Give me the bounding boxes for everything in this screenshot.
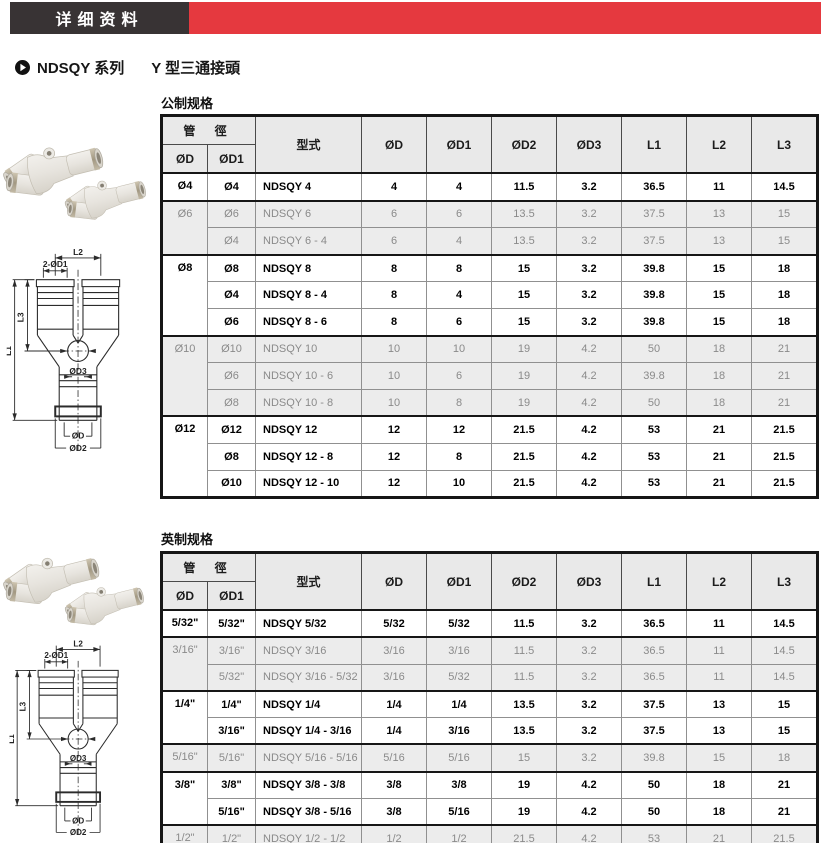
column-header: ØD1 — [427, 116, 492, 174]
value-cell: 39.8 — [622, 282, 687, 309]
value-cell: Ø12 — [208, 416, 256, 443]
value-cell: 3.2 — [557, 718, 622, 745]
column-header: L2 — [687, 116, 752, 174]
value-cell: 3/16" — [208, 718, 256, 745]
pipe-od-cell: 3/16" — [162, 637, 208, 691]
value-cell: 21 — [752, 799, 818, 826]
value-cell: 3.2 — [557, 664, 622, 691]
table-row: 1/4"1/4"NDSQY 1/41/41/413.53.237.51315 — [162, 691, 818, 718]
table-row: 5/32"NDSQY 3/16 - 5/323/165/3211.53.236.… — [162, 664, 818, 691]
value-cell: 15 — [687, 744, 752, 771]
value-cell: 18 — [687, 363, 752, 390]
pipe-diameter-header: 管 徑 — [162, 553, 256, 582]
value-cell: 21 — [752, 336, 818, 363]
series-title: NDSQY 系列 Y 型三通接頭 — [15, 57, 240, 78]
value-cell: 37.5 — [622, 201, 687, 228]
table-row: Ø12Ø12NDSQY 12121221.54.2532121.5 — [162, 416, 818, 443]
value-cell: 4 — [427, 228, 492, 255]
value-cell: 36.5 — [622, 664, 687, 691]
value-cell: 21 — [687, 470, 752, 498]
value-cell: 1/2" — [208, 825, 256, 843]
model-cell: NDSQY 6 — [256, 201, 362, 228]
value-cell: 5/16 — [362, 744, 427, 771]
value-cell: 5/16 — [427, 799, 492, 826]
model-cell: NDSQY 6 - 4 — [256, 228, 362, 255]
value-cell: 11 — [687, 610, 752, 637]
value-cell: Ø10 — [208, 470, 256, 498]
value-cell: 50 — [622, 336, 687, 363]
value-cell: 19 — [492, 363, 557, 390]
table-row: Ø4NDSQY 6 - 46413.53.237.51315 — [162, 228, 818, 255]
value-cell: 3/16 — [427, 718, 492, 745]
imperial-spec-label: 英制规格 — [161, 529, 213, 548]
metric-spec-table-container: 管 徑型式ØDØD1ØD2ØD3L1L2L3ØDØD1Ø4Ø4NDSQY 444… — [160, 114, 818, 499]
value-cell: 3/8 — [362, 799, 427, 826]
value-cell: 4 — [362, 173, 427, 201]
value-cell: 3.2 — [557, 691, 622, 718]
value-cell: 13 — [687, 201, 752, 228]
header-accent-bar — [189, 2, 821, 34]
value-cell: 3.2 — [557, 173, 622, 201]
value-cell: 3.2 — [557, 201, 622, 228]
value-cell: 6 — [362, 201, 427, 228]
column-header: L1 — [622, 116, 687, 174]
value-cell: 18 — [752, 744, 818, 771]
value-cell: 4.2 — [557, 416, 622, 443]
column-header: L2 — [687, 553, 752, 611]
value-cell: 6 — [427, 308, 492, 335]
value-cell: 37.5 — [622, 691, 687, 718]
model-cell: NDSQY 12 — [256, 416, 362, 443]
value-cell: 15 — [492, 282, 557, 309]
page-header-bar: 详细资料 — [10, 2, 821, 34]
pipe-od-cell: Ø8 — [162, 255, 208, 336]
value-cell: 6 — [362, 228, 427, 255]
value-cell: 4.2 — [557, 825, 622, 843]
value-cell: 53 — [622, 443, 687, 470]
value-cell: Ø6 — [208, 201, 256, 228]
value-cell: 3.2 — [557, 610, 622, 637]
value-cell: 10 — [427, 470, 492, 498]
value-cell: 5/32" — [208, 610, 256, 637]
value-cell: 53 — [622, 470, 687, 498]
value-cell: 36.5 — [622, 637, 687, 664]
model-cell: NDSQY 3/16 - 5/32 — [256, 664, 362, 691]
value-cell: 10 — [362, 363, 427, 390]
value-cell: 12 — [362, 443, 427, 470]
value-cell: 50 — [622, 389, 687, 416]
value-cell: 5/32 — [427, 664, 492, 691]
pipe-od-cell: Ø6 — [162, 201, 208, 255]
value-cell: 36.5 — [622, 610, 687, 637]
table-row: Ø4NDSQY 8 - 484153.239.81518 — [162, 282, 818, 309]
value-cell: 36.5 — [622, 173, 687, 201]
value-cell: 4 — [427, 173, 492, 201]
value-cell: 21.5 — [492, 825, 557, 843]
model-cell: NDSQY 1/4 - 3/16 — [256, 718, 362, 745]
value-cell: 18 — [752, 282, 818, 309]
value-cell: 8 — [362, 282, 427, 309]
value-cell: 4.2 — [557, 470, 622, 498]
value-cell: 3.2 — [557, 308, 622, 335]
value-cell: 21.5 — [752, 416, 818, 443]
dimension-drawing-imperial — [6, 638, 156, 843]
header-row: 管 徑型式ØDØD1ØD2ØD3L1L2L3 — [162, 553, 818, 582]
value-cell: Ø8 — [208, 443, 256, 470]
value-cell: 1/2 — [427, 825, 492, 843]
header-tab-label: 详细资料 — [55, 6, 143, 30]
value-cell: 11 — [687, 637, 752, 664]
value-cell: 21 — [752, 389, 818, 416]
imperial-spec-table-container: 管 徑型式ØDØD1ØD2ØD3L1L2L3ØDØD15/32"5/32"NDS… — [160, 551, 818, 843]
value-cell: 11.5 — [492, 173, 557, 201]
column-header: ØD3 — [557, 553, 622, 611]
value-cell: 13.5 — [492, 201, 557, 228]
value-cell: 15 — [752, 228, 818, 255]
value-cell: 18 — [752, 255, 818, 282]
table-row: 3/16"NDSQY 1/4 - 3/161/43/1613.53.237.51… — [162, 718, 818, 745]
value-cell: 21 — [687, 443, 752, 470]
value-cell: 21 — [687, 416, 752, 443]
model-cell: NDSQY 4 — [256, 173, 362, 201]
table-row: Ø8NDSQY 12 - 812821.54.2532121.5 — [162, 443, 818, 470]
table-row: Ø6NDSQY 8 - 686153.239.81518 — [162, 308, 818, 335]
value-cell: 1/4" — [208, 691, 256, 718]
value-cell: 21 — [687, 825, 752, 843]
column-header: ØD1 — [208, 145, 256, 174]
value-cell: 3/8 — [362, 772, 427, 799]
value-cell: 6 — [427, 363, 492, 390]
value-cell: Ø4 — [208, 228, 256, 255]
spec-table-body: Ø4Ø4NDSQY 44411.53.236.51114.5Ø6Ø6NDSQY … — [162, 173, 818, 498]
product-type-name: Y 型三通接頭 — [151, 57, 240, 78]
model-cell: NDSQY 8 — [256, 255, 362, 282]
value-cell: Ø8 — [208, 255, 256, 282]
value-cell: 21.5 — [492, 470, 557, 498]
value-cell: 18 — [752, 308, 818, 335]
value-cell: 14.5 — [752, 173, 818, 201]
value-cell: 15 — [687, 282, 752, 309]
table-row: 5/16"5/16"NDSQY 5/16 - 5/165/165/16153.2… — [162, 744, 818, 771]
value-cell: 5/32 — [427, 610, 492, 637]
model-cell: NDSQY 8 - 4 — [256, 282, 362, 309]
pipe-od-cell: 1/4" — [162, 691, 208, 745]
value-cell: 10 — [362, 389, 427, 416]
value-cell: 39.8 — [622, 363, 687, 390]
table-row: 5/16"NDSQY 3/8 - 5/163/85/16194.2501821 — [162, 799, 818, 826]
value-cell: Ø4 — [208, 173, 256, 201]
column-header: ØD2 — [492, 116, 557, 174]
value-cell: 13 — [687, 718, 752, 745]
pipe-od-cell: 5/16" — [162, 744, 208, 771]
value-cell: 5/16" — [208, 744, 256, 771]
table-row: 1/2"1/2"NDSQY 1/2 - 1/21/21/221.54.25321… — [162, 825, 818, 843]
value-cell: 4.2 — [557, 389, 622, 416]
value-cell: 13 — [687, 228, 752, 255]
value-cell: 1/4 — [427, 691, 492, 718]
spec-table-head: 管 徑型式ØDØD1ØD2ØD3L1L2L3ØDØD1 — [162, 553, 818, 611]
value-cell: 50 — [622, 799, 687, 826]
column-header: 型式 — [256, 553, 362, 611]
value-cell: 8 — [427, 389, 492, 416]
value-cell: 11.5 — [492, 610, 557, 637]
value-cell: 18 — [687, 389, 752, 416]
value-cell: 11.5 — [492, 664, 557, 691]
value-cell: 1/4 — [362, 691, 427, 718]
value-cell: 13.5 — [492, 691, 557, 718]
column-header: L1 — [622, 553, 687, 611]
spec-table: 管 徑型式ØDØD1ØD2ØD3L1L2L3ØDØD1Ø4Ø4NDSQY 444… — [160, 114, 819, 499]
value-cell: 15 — [752, 718, 818, 745]
pipe-od-cell: 3/8" — [162, 772, 208, 826]
value-cell: Ø10 — [208, 336, 256, 363]
value-cell: 18 — [687, 799, 752, 826]
model-cell: NDSQY 5/32 — [256, 610, 362, 637]
value-cell: 15 — [492, 308, 557, 335]
dimension-drawing-metric — [6, 246, 156, 461]
value-cell: 37.5 — [622, 718, 687, 745]
value-cell: 19 — [492, 772, 557, 799]
model-cell: NDSQY 3/16 — [256, 637, 362, 664]
value-cell: 10 — [427, 336, 492, 363]
column-header: ØD1 — [427, 553, 492, 611]
value-cell: 3/16" — [208, 637, 256, 664]
value-cell: 14.5 — [752, 664, 818, 691]
value-cell: 3.2 — [557, 637, 622, 664]
value-cell: 21.5 — [492, 443, 557, 470]
pipe-diameter-header: 管 徑 — [162, 116, 256, 145]
table-row: Ø10NDSQY 12 - 10121021.54.2532121.5 — [162, 470, 818, 498]
value-cell: 8 — [427, 443, 492, 470]
value-cell: 4 — [427, 282, 492, 309]
table-row: 5/32"5/32"NDSQY 5/325/325/3211.53.236.51… — [162, 610, 818, 637]
value-cell: 4.2 — [557, 772, 622, 799]
value-cell: 3.2 — [557, 282, 622, 309]
table-row: Ø4Ø4NDSQY 44411.53.236.51114.5 — [162, 173, 818, 201]
column-header: ØD — [162, 582, 208, 611]
spec-table: 管 徑型式ØDØD1ØD2ØD3L1L2L3ØDØD15/32"5/32"NDS… — [160, 551, 819, 843]
table-row: Ø6NDSQY 10 - 6106194.239.81821 — [162, 363, 818, 390]
model-cell: NDSQY 1/4 — [256, 691, 362, 718]
spec-table-body: 5/32"5/32"NDSQY 5/325/325/3211.53.236.51… — [162, 610, 818, 843]
series-name: NDSQY 系列 — [37, 57, 124, 78]
column-header: 型式 — [256, 116, 362, 174]
value-cell: 39.8 — [622, 744, 687, 771]
value-cell: 39.8 — [622, 308, 687, 335]
column-header: L3 — [752, 116, 818, 174]
value-cell: 3.2 — [557, 255, 622, 282]
model-cell: NDSQY 12 - 10 — [256, 470, 362, 498]
value-cell: 5/32" — [208, 664, 256, 691]
value-cell: 53 — [622, 825, 687, 843]
value-cell: 21.5 — [752, 825, 818, 843]
model-cell: NDSQY 3/8 - 3/8 — [256, 772, 362, 799]
table-row: 3/16"3/16"NDSQY 3/163/163/1611.53.236.51… — [162, 637, 818, 664]
value-cell: 4.2 — [557, 799, 622, 826]
value-cell: 21 — [752, 363, 818, 390]
value-cell: 21 — [752, 772, 818, 799]
value-cell: 10 — [362, 336, 427, 363]
column-header: L3 — [752, 553, 818, 611]
value-cell: Ø8 — [208, 389, 256, 416]
pipe-od-cell: Ø12 — [162, 416, 208, 497]
value-cell: 3/16 — [362, 664, 427, 691]
value-cell: 12 — [362, 470, 427, 498]
model-cell: NDSQY 10 - 6 — [256, 363, 362, 390]
value-cell: 39.8 — [622, 255, 687, 282]
column-header: ØD2 — [492, 553, 557, 611]
value-cell: 4.2 — [557, 363, 622, 390]
value-cell: 1/2 — [362, 825, 427, 843]
value-cell: 19 — [492, 389, 557, 416]
pipe-od-cell: 5/32" — [162, 610, 208, 637]
value-cell: 3.2 — [557, 744, 622, 771]
value-cell: 4.2 — [557, 443, 622, 470]
value-cell: 15 — [687, 255, 752, 282]
value-cell: 19 — [492, 799, 557, 826]
column-header: ØD — [162, 145, 208, 174]
metric-spec-label: 公制规格 — [161, 93, 213, 112]
value-cell: 15 — [492, 255, 557, 282]
product-photo-metric — [2, 126, 154, 249]
table-row: 3/8"3/8"NDSQY 3/8 - 3/83/83/8194.2501821 — [162, 772, 818, 799]
value-cell: 12 — [362, 416, 427, 443]
model-cell: NDSQY 10 — [256, 336, 362, 363]
value-cell: 14.5 — [752, 637, 818, 664]
value-cell: 5/32 — [362, 610, 427, 637]
value-cell: 3/16 — [427, 637, 492, 664]
value-cell: 12 — [427, 416, 492, 443]
value-cell: 21.5 — [752, 470, 818, 498]
value-cell: 3/16 — [362, 637, 427, 664]
table-row: Ø8NDSQY 10 - 8108194.2501821 — [162, 389, 818, 416]
value-cell: 13 — [687, 691, 752, 718]
model-cell: NDSQY 8 - 6 — [256, 308, 362, 335]
value-cell: 53 — [622, 416, 687, 443]
value-cell: 18 — [687, 336, 752, 363]
model-cell: NDSQY 12 - 8 — [256, 443, 362, 470]
pipe-od-cell: Ø4 — [162, 173, 208, 201]
table-row: Ø6Ø6NDSQY 66613.53.237.51315 — [162, 201, 818, 228]
model-cell: NDSQY 3/8 - 5/16 — [256, 799, 362, 826]
value-cell: 5/16 — [427, 744, 492, 771]
value-cell: 6 — [427, 201, 492, 228]
value-cell: 8 — [427, 255, 492, 282]
column-header: ØD — [362, 116, 427, 174]
value-cell: 21.5 — [752, 443, 818, 470]
value-cell: 19 — [492, 336, 557, 363]
value-cell: 11 — [687, 173, 752, 201]
column-header: ØD1 — [208, 582, 256, 611]
product-photo-imperial — [2, 543, 154, 648]
table-row: Ø10Ø10NDSQY 101010194.2501821 — [162, 336, 818, 363]
value-cell: Ø6 — [208, 363, 256, 390]
pipe-od-cell: Ø10 — [162, 336, 208, 417]
value-cell: 11 — [687, 664, 752, 691]
value-cell: 14.5 — [752, 610, 818, 637]
value-cell: 15 — [752, 201, 818, 228]
value-cell: 8 — [362, 308, 427, 335]
value-cell: 5/16" — [208, 799, 256, 826]
catalog-page: L2 2-ØD1 L3 — [0, 0, 821, 843]
value-cell: 13.5 — [492, 228, 557, 255]
table-row: Ø8Ø8NDSQY 888153.239.81518 — [162, 255, 818, 282]
model-cell: NDSQY 1/2 - 1/2 — [256, 825, 362, 843]
column-header: ØD — [362, 553, 427, 611]
value-cell: Ø4 — [208, 282, 256, 309]
value-cell: Ø6 — [208, 308, 256, 335]
value-cell: 3/8" — [208, 772, 256, 799]
value-cell: 1/4 — [362, 718, 427, 745]
header-tab: 详细资料 — [10, 2, 189, 34]
value-cell: 11.5 — [492, 637, 557, 664]
value-cell: 3.2 — [557, 228, 622, 255]
play-icon — [15, 60, 30, 75]
model-cell: NDSQY 10 - 8 — [256, 389, 362, 416]
value-cell: 50 — [622, 772, 687, 799]
column-header: ØD3 — [557, 116, 622, 174]
value-cell: 3/8 — [427, 772, 492, 799]
header-row: 管 徑型式ØDØD1ØD2ØD3L1L2L3 — [162, 116, 818, 145]
value-cell: 15 — [687, 308, 752, 335]
spec-table-head: 管 徑型式ØDØD1ØD2ØD3L1L2L3ØDØD1 — [162, 116, 818, 174]
value-cell: 37.5 — [622, 228, 687, 255]
pipe-od-cell: 1/2" — [162, 825, 208, 843]
value-cell: 15 — [752, 691, 818, 718]
model-cell: NDSQY 5/16 - 5/16 — [256, 744, 362, 771]
value-cell: 13.5 — [492, 718, 557, 745]
value-cell: 21.5 — [492, 416, 557, 443]
value-cell: 8 — [362, 255, 427, 282]
value-cell: 4.2 — [557, 336, 622, 363]
value-cell: 15 — [492, 744, 557, 771]
value-cell: 18 — [687, 772, 752, 799]
